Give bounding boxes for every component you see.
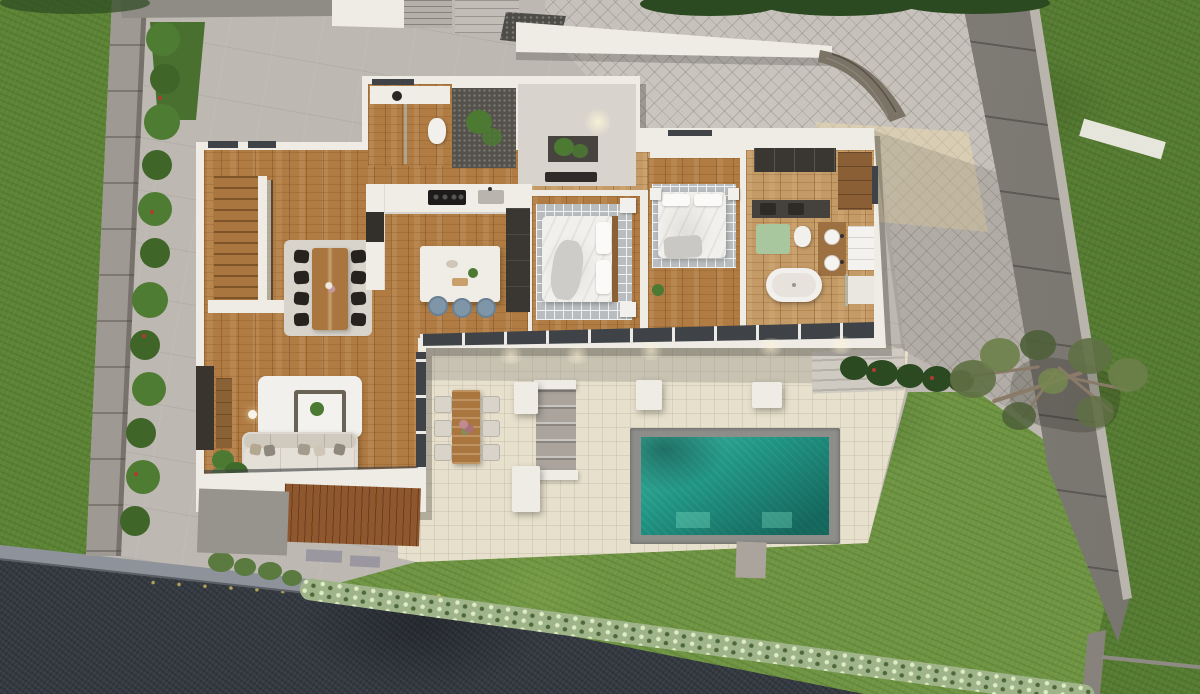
rose-flowers — [930, 376, 934, 380]
island-board — [452, 278, 468, 286]
planter-bench — [514, 382, 538, 414]
dining-chair — [351, 313, 367, 327]
floor-lamp — [248, 410, 257, 419]
living-east-glass-door — [416, 352, 426, 470]
outdoor-chair — [482, 444, 500, 461]
bush — [144, 104, 180, 140]
dining-chair — [350, 249, 366, 263]
fire-table-plant — [310, 402, 324, 416]
kitchen-faucet — [488, 187, 492, 191]
deck-concrete-pad — [197, 488, 289, 555]
bath-mat — [756, 224, 790, 254]
nightstand — [620, 302, 636, 317]
outdoor-chair — [482, 396, 500, 413]
step-stone — [306, 549, 343, 563]
kitchen-island — [420, 246, 500, 302]
shrub — [208, 552, 234, 572]
north-window — [208, 141, 238, 148]
table-centerpiece-flowers — [458, 418, 474, 436]
planter-bench — [752, 382, 782, 408]
outdoor-chair — [434, 396, 452, 413]
towel-shelf — [848, 226, 874, 270]
powder-shower-glass — [404, 104, 407, 164]
downlight-glow — [496, 346, 526, 364]
powder-basin — [392, 91, 402, 101]
kitchen-sink — [478, 190, 504, 204]
shower-tray — [848, 276, 874, 304]
planter-bench — [636, 380, 662, 410]
staircase-handrail — [271, 180, 273, 302]
garden-shrub — [896, 364, 924, 388]
bush — [126, 418, 156, 448]
nightstand — [650, 188, 661, 200]
curved-stone-wall — [818, 42, 918, 130]
outdoor-chair — [434, 420, 452, 437]
staircase-stringer — [258, 176, 267, 304]
bedroom1-pillow — [596, 260, 611, 294]
tree-foliage — [980, 338, 1020, 372]
exterior-stairs-top — [404, 0, 452, 28]
shrub — [282, 570, 302, 586]
entry-hall-floor — [518, 84, 636, 186]
bathroom-east-window — [872, 166, 878, 204]
dining-centerpiece — [324, 280, 336, 294]
bedroom1-headboard — [612, 216, 618, 302]
staircase-treads — [214, 176, 258, 304]
vanity-basin — [760, 203, 776, 215]
cooktop — [428, 190, 466, 205]
garden-shrub — [840, 356, 868, 380]
entry-plant — [572, 144, 588, 158]
tree-foliage — [1038, 368, 1068, 394]
bush — [132, 372, 166, 406]
terrace-steps — [536, 388, 576, 472]
garden-shrub — [866, 360, 898, 386]
bush — [138, 192, 172, 226]
kitchen-appliance — [366, 212, 384, 242]
bush — [150, 64, 180, 94]
dining-chair — [294, 270, 310, 284]
downlight-glow — [826, 336, 856, 354]
island-bowl — [446, 260, 458, 268]
rose-flowers — [150, 210, 154, 214]
dining-chair — [294, 249, 310, 263]
shower-glass — [845, 274, 848, 306]
aerial-villa-render — [0, 0, 1200, 694]
pool-side-path — [735, 541, 766, 578]
dining-chair — [294, 313, 310, 327]
throw-pillow — [313, 444, 326, 457]
tree-foliage — [1068, 338, 1112, 374]
dining-chair — [351, 270, 367, 284]
tree-foliage — [1020, 330, 1056, 360]
media-cabinet — [216, 378, 232, 448]
north-window — [248, 141, 276, 148]
dining-chair — [351, 291, 367, 305]
outdoor-chair — [434, 444, 452, 461]
bedroom2-plant — [652, 284, 664, 296]
pool-underwater-bench — [676, 512, 710, 528]
tv-panel — [196, 366, 214, 450]
planter-bench — [512, 466, 540, 512]
courtyard-plant — [482, 128, 502, 146]
shrub — [258, 562, 282, 580]
pantry-column — [506, 208, 530, 312]
entry-plant — [554, 138, 574, 156]
tree-foliage — [1002, 402, 1036, 430]
bedroom2-throw — [663, 235, 702, 260]
tub-drain — [792, 283, 796, 287]
step-stone — [350, 555, 381, 568]
bush — [132, 282, 168, 318]
bar-stool — [428, 296, 448, 316]
outdoor-chair — [482, 420, 500, 437]
sink-tap — [840, 234, 844, 238]
nightstand — [620, 198, 636, 213]
bush — [142, 150, 172, 180]
round-sink — [824, 229, 840, 245]
downlight-glow — [562, 346, 592, 364]
powder-vanity — [370, 86, 450, 104]
bedroom2-pillow — [662, 194, 690, 206]
bedroom2-pillow — [694, 194, 722, 206]
bush — [120, 506, 150, 536]
olive-tree — [950, 330, 1160, 475]
terrace-step-cap — [534, 470, 578, 480]
rose-flowers — [142, 334, 146, 338]
rose-flowers — [872, 368, 876, 372]
downlight-glow — [636, 342, 666, 360]
shrub — [234, 558, 256, 576]
vanity-basin — [788, 203, 804, 215]
north-window — [668, 130, 712, 136]
dining-chair — [293, 291, 309, 305]
throw-pillow — [297, 443, 310, 455]
entry-downlight-glow — [584, 108, 612, 136]
bar-stool — [452, 298, 472, 318]
pool-water — [641, 437, 829, 535]
bedroom1-pillow — [596, 222, 611, 254]
north-window — [372, 79, 414, 85]
throw-pillow — [249, 443, 262, 456]
wardrobe-dark — [754, 148, 836, 172]
tree-foliage — [1108, 358, 1148, 392]
entry-console-bench — [545, 172, 597, 182]
rose-flowers — [134, 472, 138, 476]
bush — [126, 460, 160, 494]
round-sink — [824, 255, 840, 271]
closet-shelving — [838, 152, 872, 210]
nightstand — [728, 188, 739, 200]
rose-flowers — [158, 96, 162, 100]
throw-pillow — [263, 444, 275, 456]
bar-stool — [476, 298, 496, 318]
timber-deck — [283, 484, 421, 547]
toilet — [794, 226, 811, 247]
pool-underwater-bench — [762, 512, 792, 528]
bush — [146, 22, 180, 56]
powder-toilet — [428, 118, 446, 144]
sink-tap — [840, 260, 844, 264]
downlight-glow — [756, 338, 786, 356]
tree-foliage — [1076, 396, 1114, 428]
terrace-step-cap — [534, 380, 576, 389]
island-plant — [468, 268, 478, 278]
bush — [140, 238, 170, 268]
